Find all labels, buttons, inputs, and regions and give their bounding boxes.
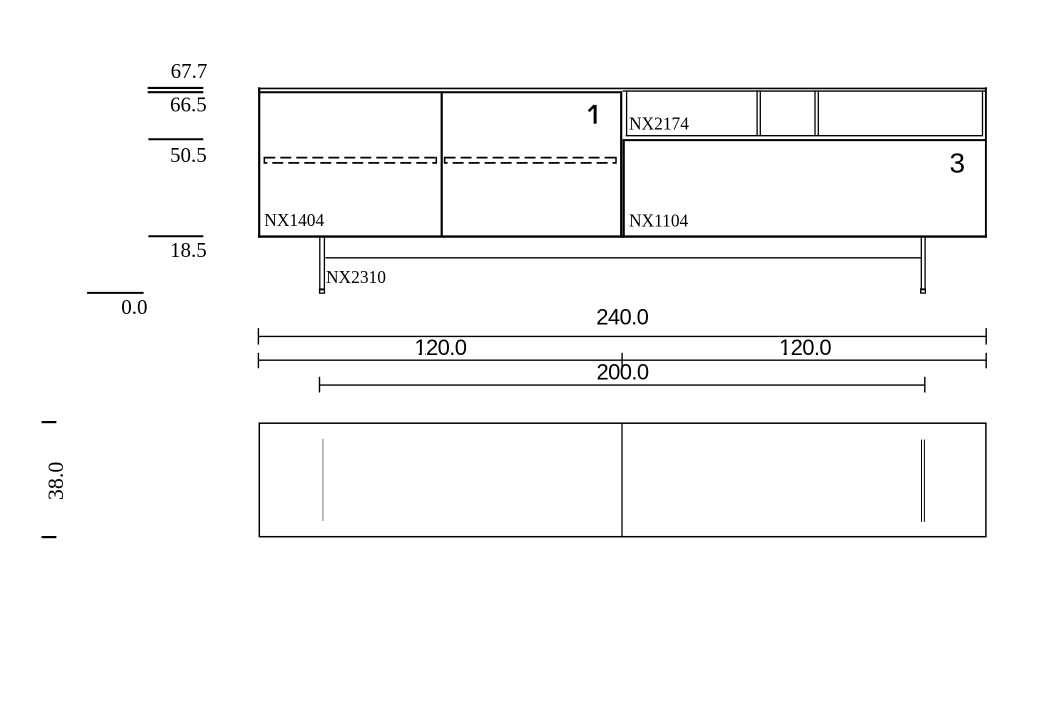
svg-text:3: 3 — [950, 147, 966, 178]
svg-text:NX2174: NX2174 — [629, 113, 689, 133]
svg-text:240.0: 240.0 — [596, 305, 648, 330]
svg-text:0.0: 0.0 — [121, 295, 147, 319]
svg-text:66.5: 66.5 — [170, 92, 207, 116]
svg-text:NX1404: NX1404 — [264, 210, 324, 230]
svg-text:200.0: 200.0 — [596, 360, 648, 385]
svg-text:120.0: 120.0 — [414, 335, 466, 360]
svg-text:120.0: 120.0 — [779, 335, 831, 360]
svg-text:NX2310: NX2310 — [326, 267, 386, 287]
svg-text:18.5: 18.5 — [170, 238, 207, 262]
svg-text:67.7: 67.7 — [171, 59, 208, 83]
svg-text:38.0: 38.0 — [43, 462, 68, 501]
svg-text:NX1104: NX1104 — [629, 211, 689, 231]
svg-text:50.5: 50.5 — [170, 143, 207, 167]
